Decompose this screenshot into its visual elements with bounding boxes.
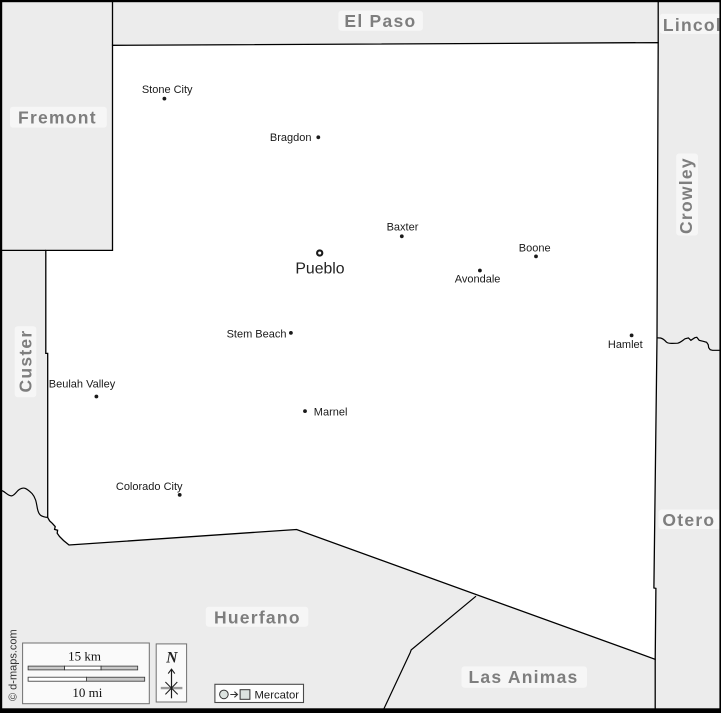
svg-text:N: N — [165, 649, 178, 666]
svg-text:Avondale: Avondale — [455, 273, 501, 285]
svg-text:Lincoln: Lincoln — [663, 15, 721, 35]
svg-text:Baxter: Baxter — [387, 222, 419, 234]
svg-text:Las Animas: Las Animas — [468, 667, 578, 687]
svg-text:10 mi: 10 mi — [72, 685, 102, 700]
svg-text:Beulah Valley: Beulah Valley — [49, 379, 116, 391]
svg-text:Mercator: Mercator — [255, 689, 300, 701]
svg-text:Hamlet: Hamlet — [608, 339, 643, 351]
svg-text:Stem Beach: Stem Beach — [227, 328, 287, 340]
svg-text:15 km: 15 km — [68, 649, 101, 664]
svg-text:Colorado City: Colorado City — [116, 481, 183, 493]
svg-text:Fremont: Fremont — [18, 108, 97, 128]
svg-text:Bragdon: Bragdon — [270, 132, 312, 144]
svg-text:Marnel: Marnel — [314, 407, 348, 419]
svg-text:Boone: Boone — [519, 243, 551, 255]
svg-text:El Paso: El Paso — [344, 11, 416, 31]
svg-text:Otero: Otero — [662, 510, 715, 530]
svg-text:Pueblo: Pueblo — [295, 261, 344, 278]
svg-text:© d-maps.com: © d-maps.com — [8, 629, 20, 701]
svg-text:Crowley: Crowley — [676, 157, 696, 234]
svg-text:Custer: Custer — [16, 330, 36, 393]
svg-text:Huerfano: Huerfano — [214, 607, 301, 627]
svg-text:Stone City: Stone City — [142, 84, 193, 96]
